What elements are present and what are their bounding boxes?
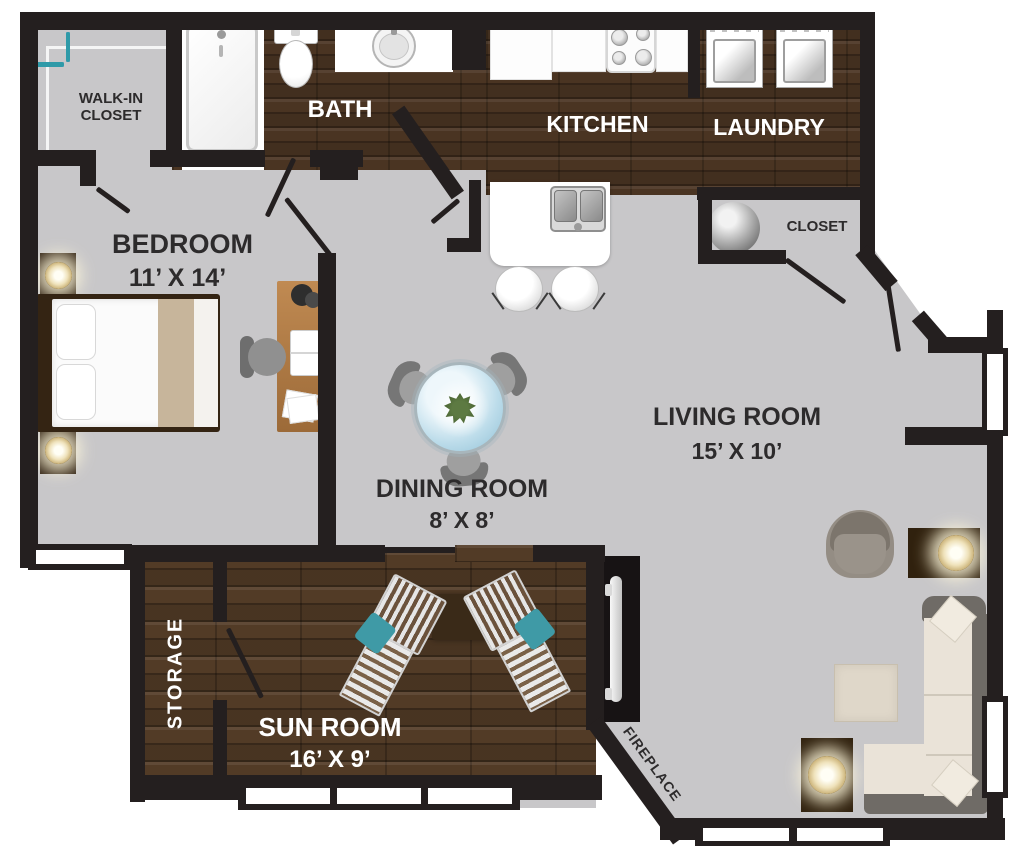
sofa-seat-chaise [864, 744, 926, 794]
tv-icon [610, 576, 622, 702]
wall-storage-right-top [213, 552, 227, 622]
nightstand-lamp [45, 437, 72, 464]
tv-bracket [605, 584, 612, 596]
dryer-door [783, 39, 826, 83]
washer-door [713, 39, 756, 83]
wall-island-return-h [447, 238, 481, 252]
desk-chair [248, 338, 286, 376]
wall-laundry-bottom [697, 187, 863, 200]
bed-pillow [56, 304, 96, 360]
wall-bath-bottom-stub [320, 166, 358, 180]
tub-drain-icon [219, 45, 223, 57]
exterior-mask-bottom-left [0, 808, 600, 848]
kitchen-sink-basin-left [554, 190, 577, 222]
sunroom-window [337, 788, 421, 804]
wall-bedroom-right [318, 253, 336, 552]
wall-sunroom-right [586, 548, 604, 730]
armchair-seat [834, 534, 886, 574]
wall-kitchen-laundry-divider [688, 12, 700, 98]
wall-closet-bottom [698, 250, 786, 264]
living-window [797, 828, 883, 841]
walk-in-closet-label-line2: CLOSET [55, 107, 167, 124]
wall-walkin-bottom [30, 150, 82, 166]
laundry-label: LAUNDRY [698, 114, 840, 141]
dining-room-label: DINING ROOM [348, 475, 576, 504]
wall-walkin-corner-stub [80, 150, 96, 186]
stove-burner [635, 49, 652, 66]
wall-dining-sunroom-sill [385, 547, 455, 553]
side-table-lamp [938, 535, 974, 571]
sunroom-window [428, 788, 512, 804]
bedroom-window [36, 550, 124, 564]
bathtub [186, 24, 258, 152]
dining-room-dimensions: 8’ X 8’ [348, 507, 576, 534]
nightstand-lamp [45, 262, 72, 289]
tv-bracket [605, 688, 612, 700]
sun-room-label: SUN ROOM [240, 712, 420, 743]
sun-room-dimensions: 16’ X 9’ [240, 746, 420, 774]
kitchen-faucet-icon [574, 223, 582, 231]
closet-label: CLOSET [778, 218, 856, 235]
kitchen-sink-basin-right [580, 190, 603, 222]
wall-walkin-bath-divider [166, 12, 182, 158]
living-room-dimensions: 15’ X 10’ [628, 438, 846, 465]
wall-bath-bottom-right [310, 150, 363, 167]
wall-bath-bottom-left [150, 150, 265, 167]
sunroom-window [246, 788, 330, 804]
wall-laundry-right [860, 12, 875, 255]
bed-pillow [56, 364, 96, 420]
bath-label: BATH [295, 96, 385, 124]
walk-in-closet-label-line1: WALK-IN [55, 90, 167, 107]
tub-faucet-icon [217, 30, 226, 39]
bedroom-label: BEDROOM [95, 229, 270, 260]
wall-left [20, 12, 38, 568]
toilet-bowl [279, 40, 313, 88]
living-window [703, 828, 789, 841]
floor-plan: WALK-IN CLOSET BATH KITCHEN LAUNDRY CLOS… [0, 0, 1024, 848]
wall-closet-left [698, 187, 712, 252]
bath-sink-basin [379, 33, 409, 60]
dining-sunroom-passage-floor [455, 545, 533, 562]
living-side-window [987, 702, 1003, 792]
living-room-label: LIVING ROOM [628, 403, 846, 432]
bed-blanket [158, 299, 194, 427]
stove-burner [612, 51, 626, 65]
wall-storage-left [130, 552, 145, 802]
wall-bath-kitchen-top [452, 12, 486, 70]
bedroom-dimensions: 11’ X 14’ [95, 264, 260, 293]
wall-dining-sunroom-divider [130, 545, 385, 562]
storage-label: STORAGE [165, 601, 191, 746]
rug [834, 664, 898, 722]
water-heater [708, 202, 760, 254]
toilet-flush-button [291, 29, 300, 36]
desk-papers [286, 394, 319, 424]
kitchen-label: KITCHEN [530, 111, 665, 138]
laptop-hinge [290, 352, 320, 354]
bed-sheet-fold [194, 299, 218, 427]
wall-top [20, 12, 875, 30]
stove-burner [611, 29, 628, 46]
closet-rod-horizontal [46, 46, 166, 49]
side-table-lamp [808, 756, 846, 794]
entry-window [987, 354, 1003, 430]
